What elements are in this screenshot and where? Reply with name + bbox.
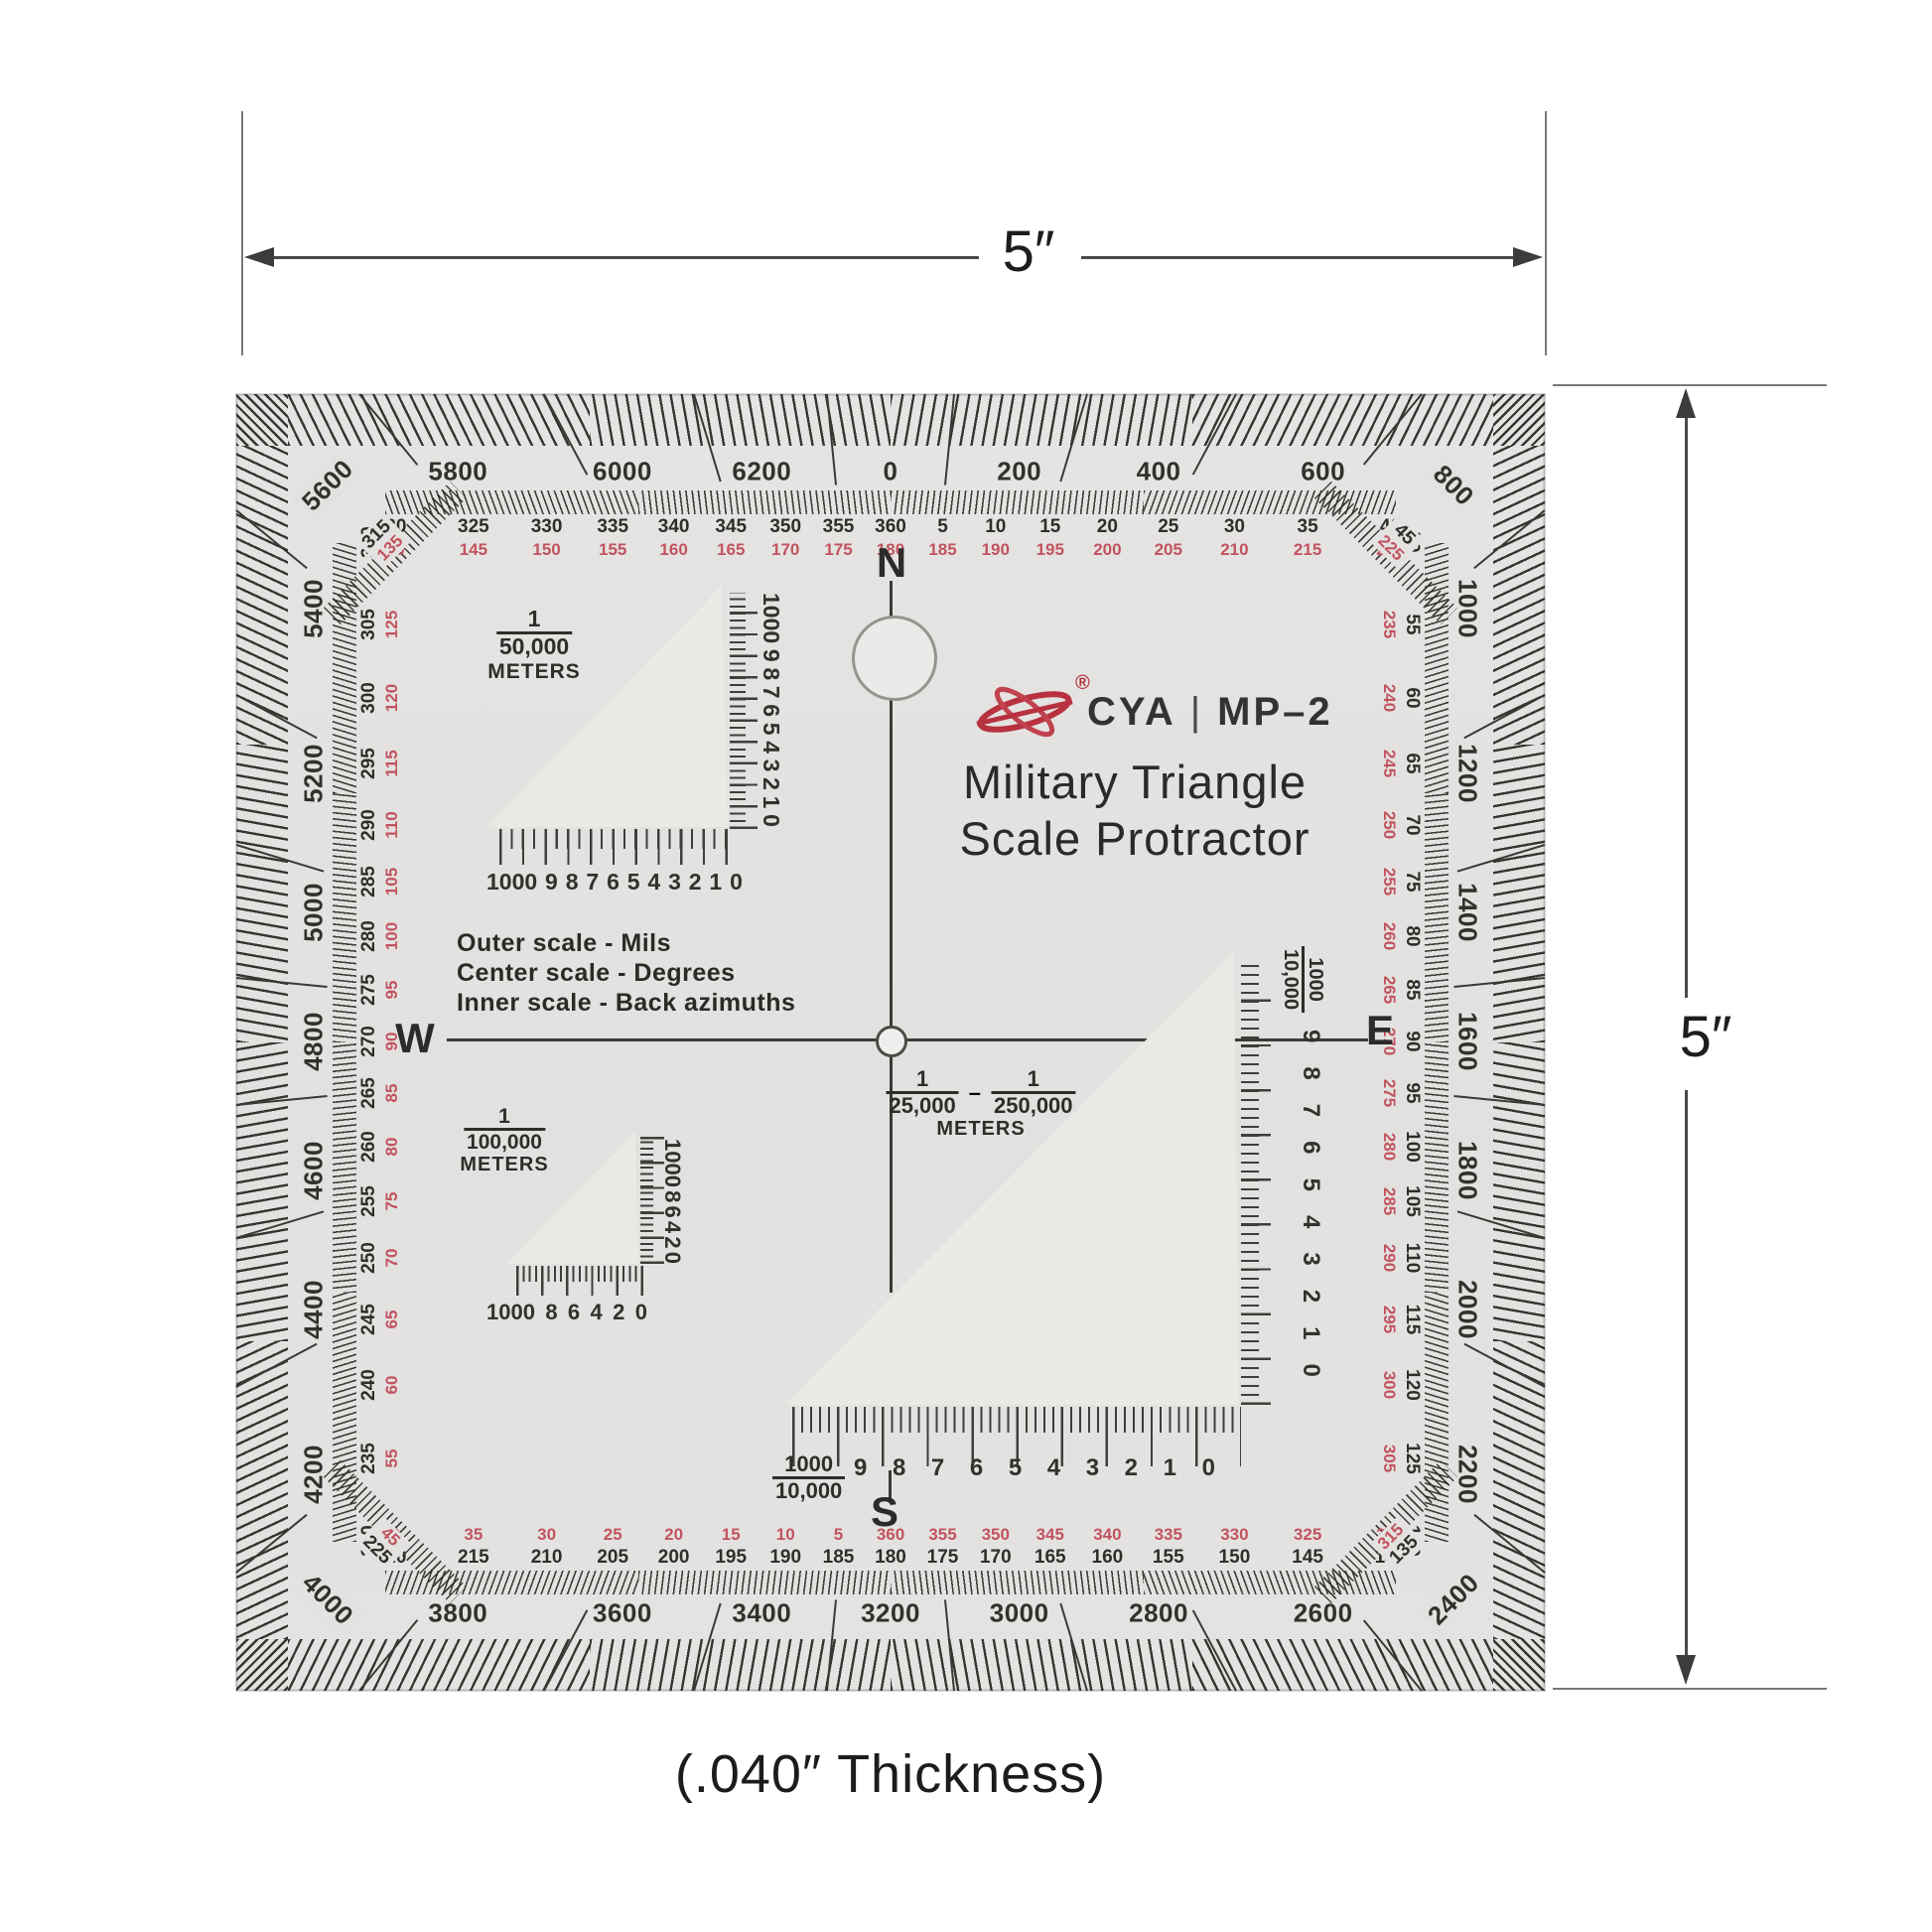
- mils-label: 4800: [299, 1012, 330, 1071]
- mils-label: 4600: [299, 1141, 330, 1200]
- mils-label: 6000: [593, 457, 652, 487]
- tick-number: 6: [661, 1206, 685, 1218]
- tick-number: 7: [931, 1454, 944, 1482]
- scale-unit: METERS: [487, 660, 581, 684]
- fraction-denominator: 25,000: [886, 1091, 958, 1118]
- degree-label: 295: [358, 748, 380, 779]
- scale-legend: Outer scale - Mils Center scale - Degree…: [457, 928, 795, 1018]
- mils-label: 200: [997, 457, 1041, 487]
- tick-number: 7: [586, 869, 599, 896]
- degree-label: 160: [1092, 1547, 1124, 1569]
- back-azimuth-label: 255: [1379, 868, 1399, 896]
- tick-number: 0: [759, 814, 784, 827]
- tick-number: 0: [730, 869, 743, 896]
- back-azimuth-label: 210: [1220, 540, 1248, 560]
- degree-label: 325: [458, 516, 489, 538]
- tick-number: 3: [1086, 1454, 1099, 1482]
- ruler-ticks: [730, 593, 758, 829]
- tick-number: 8: [661, 1190, 685, 1202]
- tick-number: 8: [893, 1454, 905, 1482]
- scale-fraction-50000: 150,000 METERS: [487, 607, 581, 684]
- back-azimuth-label: 200: [1093, 540, 1121, 560]
- ruler-numbers: 10009876543210: [759, 593, 784, 827]
- product-title-line2: Scale Protractor: [887, 810, 1383, 867]
- degree-label: 150: [1219, 1547, 1251, 1569]
- tick-number: 2: [613, 1300, 624, 1325]
- degree-label: 125: [1401, 1443, 1423, 1474]
- back-azimuth-label: 70: [382, 1249, 402, 1268]
- back-azimuth-label: 300: [1379, 1371, 1399, 1399]
- degree-label: 110: [1401, 1243, 1423, 1274]
- mils-label: 5000: [299, 883, 330, 942]
- degree-label: 25: [1158, 516, 1178, 538]
- back-azimuth-label: 190: [982, 540, 1010, 560]
- extension-line: [1553, 1688, 1827, 1690]
- back-azimuth-label: 175: [824, 540, 852, 560]
- tick-number: 4: [1047, 1454, 1060, 1482]
- degree-label: 100: [1401, 1131, 1423, 1163]
- arrowhead-left-icon: [244, 247, 274, 267]
- extension-line: [241, 111, 243, 355]
- fraction-dash: –: [969, 1080, 981, 1106]
- mils-label: 400: [1137, 457, 1181, 487]
- degree-label: 200: [658, 1547, 690, 1569]
- dimension-line: [1685, 1090, 1688, 1657]
- fraction-numerator: 1000: [780, 1452, 837, 1476]
- degree-label: 165: [1035, 1547, 1066, 1569]
- back-azimuth-label: 100: [382, 922, 402, 950]
- mils-label: 3800: [428, 1598, 487, 1629]
- mils-label: 3600: [593, 1598, 652, 1629]
- scale-fraction-10000: 100010,000: [772, 1452, 845, 1503]
- tick-number: 6: [607, 869, 620, 896]
- tick-number: 0: [635, 1300, 647, 1325]
- degree-label: 205: [597, 1547, 628, 1569]
- degree-label: 250: [358, 1243, 380, 1275]
- extension-line: [1545, 111, 1547, 355]
- back-azimuth-label: 85: [382, 1084, 402, 1103]
- back-azimuth-label: 25: [604, 1525, 622, 1545]
- back-azimuth-label: 295: [1379, 1306, 1399, 1333]
- back-azimuth-label: 55: [382, 1449, 402, 1468]
- mils-label: 4200: [299, 1445, 330, 1504]
- back-azimuth-label: 170: [771, 540, 799, 560]
- mils-label: 5800: [428, 457, 487, 487]
- back-azimuth-label: 285: [1379, 1187, 1399, 1215]
- brand-text: CYA | MP–2: [1087, 684, 1333, 740]
- back-azimuth-label: 340: [1093, 1525, 1121, 1545]
- tick-number: 6: [568, 1300, 580, 1325]
- tick-number: 4: [661, 1221, 685, 1233]
- compass-south-label: S: [871, 1488, 898, 1536]
- tick-number: 1: [709, 869, 722, 896]
- legend-inner-scale: Inner scale - Back azimuths: [457, 988, 795, 1018]
- degree-label: 260: [358, 1131, 380, 1163]
- degree-label: 300: [358, 682, 380, 714]
- degree-label: 175: [927, 1547, 959, 1569]
- back-azimuth-label: 195: [1036, 540, 1064, 560]
- compass-west-label: W: [395, 1015, 435, 1062]
- fraction-denominator: 250,000: [991, 1091, 1076, 1118]
- degree-label: 90: [1401, 1031, 1423, 1051]
- back-azimuth-label: 35: [464, 1525, 483, 1545]
- tick-number: 3: [668, 869, 681, 896]
- tick-number: 6: [759, 704, 784, 717]
- degree-label: 185: [823, 1547, 855, 1569]
- tick-number: 0: [1299, 1364, 1324, 1377]
- mils-corner-label: 2400: [1418, 1564, 1490, 1636]
- degree-label: 240: [358, 1370, 380, 1402]
- degree-label: 245: [358, 1304, 380, 1335]
- ruler-numbers: 9876543210: [854, 1454, 1215, 1482]
- ruler-ticks: [516, 1266, 643, 1296]
- back-azimuth-label: 335: [1155, 1525, 1182, 1545]
- degree-label: 105: [1401, 1185, 1423, 1217]
- back-azimuth-label: 15: [722, 1525, 741, 1545]
- product-image: 5″ 5″ (.040″ Thickness) 5800600062000200…: [0, 0, 1932, 1932]
- mils-corner-label: 5600: [292, 450, 364, 522]
- degree-label: 55: [1401, 614, 1423, 634]
- tick-number: 5: [1009, 1454, 1022, 1482]
- back-azimuth-label: 215: [1294, 540, 1321, 560]
- degree-label: 70: [1401, 814, 1423, 835]
- degree-label: 305: [358, 609, 380, 640]
- degree-label: 115: [1401, 1304, 1423, 1334]
- tick-number: 9: [759, 649, 784, 662]
- back-azimuth-label: 65: [382, 1310, 402, 1328]
- back-azimuth-label: 115: [382, 750, 402, 776]
- degree-label: 340: [658, 516, 690, 538]
- degree-label: 145: [1292, 1547, 1323, 1569]
- back-azimuth-label: 120: [382, 683, 402, 711]
- legend-outer-scale: Outer scale - Mils: [457, 928, 795, 958]
- degree-label: 190: [769, 1547, 801, 1569]
- fraction-denominator: 100,000: [464, 1128, 545, 1154]
- brand-name: CYA: [1087, 690, 1176, 735]
- product-title: Military Triangle Scale Protractor: [887, 754, 1383, 867]
- back-azimuth-label: 110: [382, 811, 402, 838]
- tick-number: 0: [1202, 1454, 1215, 1482]
- arrowhead-right-icon: [1513, 247, 1543, 267]
- tick-number: 2: [759, 777, 784, 790]
- tick-number: 1000: [486, 869, 537, 896]
- mils-label: 4400: [299, 1280, 330, 1339]
- compass-north-label: N: [877, 539, 906, 587]
- degree-label: 345: [715, 516, 747, 538]
- degree-label: 195: [715, 1547, 747, 1569]
- fraction-numerator: 1000: [1305, 953, 1326, 1006]
- degree-label: 5: [937, 516, 948, 538]
- back-azimuth-label: 10: [776, 1525, 795, 1545]
- arrowhead-down-icon: [1676, 1655, 1696, 1685]
- back-azimuth-label: 290: [1379, 1244, 1399, 1272]
- fraction-numerator: 1: [1024, 1067, 1043, 1091]
- back-azimuth-label: 185: [928, 540, 956, 560]
- back-azimuth-label: 330: [1220, 1525, 1248, 1545]
- tick-number: 4: [759, 741, 784, 754]
- degree-label: 335: [597, 516, 628, 538]
- tick-number: 6: [970, 1454, 983, 1482]
- mils-label: 5400: [299, 579, 330, 638]
- tick-number: 1000: [661, 1139, 685, 1187]
- degree-label: 65: [1401, 754, 1423, 774]
- back-azimuth-label: 355: [928, 1525, 956, 1545]
- degree-label: 235: [358, 1443, 380, 1474]
- tick-number: 2: [1299, 1290, 1324, 1303]
- back-azimuth-label: 350: [982, 1525, 1010, 1545]
- brand-separator: |: [1190, 690, 1203, 735]
- degree-label: 20: [1097, 516, 1118, 538]
- mils-label: 2800: [1129, 1598, 1188, 1629]
- degree-label: 270: [358, 1026, 380, 1057]
- protractor-body: 5800600062000200400600380036003400320030…: [236, 394, 1545, 1691]
- back-azimuth-label: 275: [1379, 1079, 1399, 1107]
- tick-number: 5: [759, 723, 784, 736]
- back-azimuth-label: 125: [382, 611, 402, 638]
- degree-label: 180: [875, 1547, 906, 1569]
- back-azimuth-label: 260: [1379, 922, 1399, 950]
- mils-corner-label: 800: [1423, 455, 1484, 516]
- product-title-line1: Military Triangle: [887, 754, 1383, 810]
- ruler-ticks: [499, 829, 728, 865]
- ruler-numbers: 10009876543210: [486, 869, 743, 896]
- tick-number: 4: [591, 1300, 603, 1325]
- tick-number: 9: [545, 869, 558, 896]
- tick-number: 1000: [759, 593, 784, 643]
- degree-label: 255: [358, 1185, 380, 1217]
- back-azimuth-label: 160: [659, 540, 687, 560]
- ruler-numbers: 100086420: [486, 1300, 647, 1325]
- dimension-line: [272, 256, 979, 259]
- mils-label: 1600: [1452, 1012, 1483, 1071]
- back-azimuth-label: 265: [1379, 975, 1399, 1003]
- brand-logo-icon: [973, 678, 1076, 746]
- scale-fraction-10000-right: 100010,000: [1280, 946, 1326, 1013]
- tick-number: 1: [1299, 1326, 1324, 1339]
- tick-number: 2: [661, 1236, 685, 1248]
- degree-label: 215: [458, 1547, 489, 1569]
- extension-line: [1553, 384, 1827, 386]
- ruler-numbers: 9876543210: [1299, 1030, 1324, 1377]
- back-azimuth-label: 80: [382, 1137, 402, 1156]
- back-azimuth-label: 5: [834, 1525, 843, 1545]
- degree-label: 285: [358, 866, 380, 897]
- tick-number: 5: [627, 869, 640, 896]
- mils-label: 1000: [1452, 579, 1483, 638]
- tick-number: 3: [1299, 1252, 1324, 1265]
- tick-number: 8: [1299, 1066, 1324, 1079]
- tick-number: 1: [1164, 1454, 1176, 1482]
- degree-label: 290: [358, 809, 380, 841]
- back-azimuth-label: 345: [1036, 1525, 1064, 1545]
- ruler-ticks: [1241, 958, 1271, 1405]
- fraction-numerator: 1: [524, 607, 545, 631]
- degree-label: 85: [1401, 979, 1423, 1000]
- mils-label: 600: [1301, 457, 1345, 487]
- tick-number: 2: [1125, 1454, 1138, 1482]
- fraction-numerator: 1: [912, 1067, 932, 1091]
- mils-label: 3200: [861, 1598, 920, 1629]
- fraction-denominator: 50,000: [496, 631, 572, 659]
- index-hole: [852, 616, 937, 701]
- back-azimuth-label: 20: [664, 1525, 683, 1545]
- back-azimuth-label: 145: [460, 540, 487, 560]
- mils-label: 0: [884, 457, 898, 487]
- back-azimuth-label: 95: [382, 980, 402, 999]
- degree-label: 95: [1401, 1083, 1423, 1104]
- degree-label: 120: [1401, 1370, 1423, 1402]
- back-azimuth-label: 105: [382, 868, 402, 896]
- back-azimuth-label: 205: [1155, 540, 1182, 560]
- mils-label: 3400: [732, 1598, 791, 1629]
- mils-label: 1800: [1452, 1141, 1483, 1200]
- tick-number: 8: [759, 667, 784, 680]
- ruler-numbers: 100086420: [661, 1139, 685, 1264]
- tick-number: 6: [1299, 1141, 1324, 1154]
- tick-number: 2: [689, 869, 702, 896]
- mils-label: 1200: [1452, 744, 1483, 803]
- arrowhead-up-icon: [1676, 388, 1696, 418]
- tick-number: 9: [1299, 1030, 1324, 1042]
- dimension-line: [1081, 256, 1515, 259]
- back-azimuth-label: 150: [532, 540, 560, 560]
- degree-label: 10: [985, 516, 1006, 538]
- scale-fraction-25000: 125,000 – 1250,000 METERS: [886, 1067, 1075, 1141]
- degree-label: 265: [358, 1078, 380, 1110]
- tick-number: 1000: [486, 1300, 535, 1325]
- mils-label: 2000: [1452, 1280, 1483, 1339]
- back-azimuth-label: 75: [382, 1191, 402, 1210]
- fraction-denominator: 10,000: [772, 1476, 845, 1503]
- thickness-label: (.040″ Thickness): [236, 1743, 1545, 1805]
- fraction-numerator: 1: [494, 1105, 514, 1128]
- width-dimension-label: 5″: [979, 220, 1078, 284]
- mils-label: 3000: [990, 1598, 1049, 1629]
- back-azimuth-label: 325: [1294, 1525, 1321, 1545]
- degree-label: 280: [358, 920, 380, 952]
- tick-number: 5: [1299, 1178, 1324, 1191]
- degree-label: 275: [358, 974, 380, 1006]
- back-azimuth-label: 30: [537, 1525, 556, 1545]
- degree-label: 170: [980, 1547, 1012, 1569]
- back-azimuth-label: 60: [382, 1376, 402, 1395]
- degree-label: 75: [1401, 872, 1423, 893]
- tick-number: 4: [1299, 1215, 1324, 1228]
- tick-number: 0: [661, 1252, 685, 1264]
- mils-label: 1400: [1452, 883, 1483, 942]
- tick-number: 7: [1299, 1104, 1324, 1117]
- tick-number: 7: [759, 686, 784, 699]
- degree-label: 360: [875, 516, 906, 538]
- degree-label: 330: [531, 516, 563, 538]
- degree-label: 210: [531, 1547, 563, 1569]
- mils-label: 2200: [1452, 1445, 1483, 1504]
- fraction-denominator: 10,000: [1280, 946, 1305, 1013]
- back-azimuth-label: 165: [717, 540, 745, 560]
- legend-center-scale: Center scale - Degrees: [457, 958, 795, 988]
- tick-number: 9: [854, 1454, 867, 1482]
- scale-unit: METERS: [936, 1118, 1025, 1141]
- degree-label: 30: [1224, 516, 1245, 538]
- brand-model: MP–2: [1217, 690, 1333, 735]
- back-azimuth-label: 280: [1379, 1133, 1399, 1161]
- tick-number: 3: [759, 759, 784, 772]
- back-azimuth-label: 305: [1379, 1445, 1399, 1472]
- tick-number: 8: [545, 1300, 557, 1325]
- compass-east-label: E: [1366, 1007, 1394, 1054]
- tick-number: 1: [759, 796, 784, 809]
- back-azimuth-label: 235: [1379, 611, 1399, 638]
- tick-number: 4: [647, 869, 660, 896]
- degree-label: 15: [1039, 516, 1060, 538]
- tick-number: 8: [566, 869, 579, 896]
- scale-fraction-100000: 1100,000 METERS: [460, 1105, 548, 1176]
- back-azimuth-label: 155: [599, 540, 626, 560]
- degree-label: 155: [1153, 1547, 1184, 1569]
- height-dimension-label: 5″: [1646, 1006, 1765, 1069]
- degree-label: 60: [1401, 687, 1423, 708]
- degree-label: 35: [1298, 516, 1318, 538]
- mils-label: 2600: [1294, 1598, 1353, 1629]
- degree-label: 80: [1401, 926, 1423, 947]
- degree-label: 355: [823, 516, 855, 538]
- back-azimuth-label: 240: [1379, 683, 1399, 711]
- degree-label: 350: [769, 516, 801, 538]
- scale-unit: METERS: [460, 1154, 548, 1176]
- mils-corner-label: 4000: [292, 1564, 364, 1636]
- center-pivot-hole: [876, 1026, 907, 1057]
- mils-label: 5200: [299, 744, 330, 803]
- dimension-line: [1685, 416, 1688, 998]
- mils-label: 6200: [732, 457, 791, 487]
